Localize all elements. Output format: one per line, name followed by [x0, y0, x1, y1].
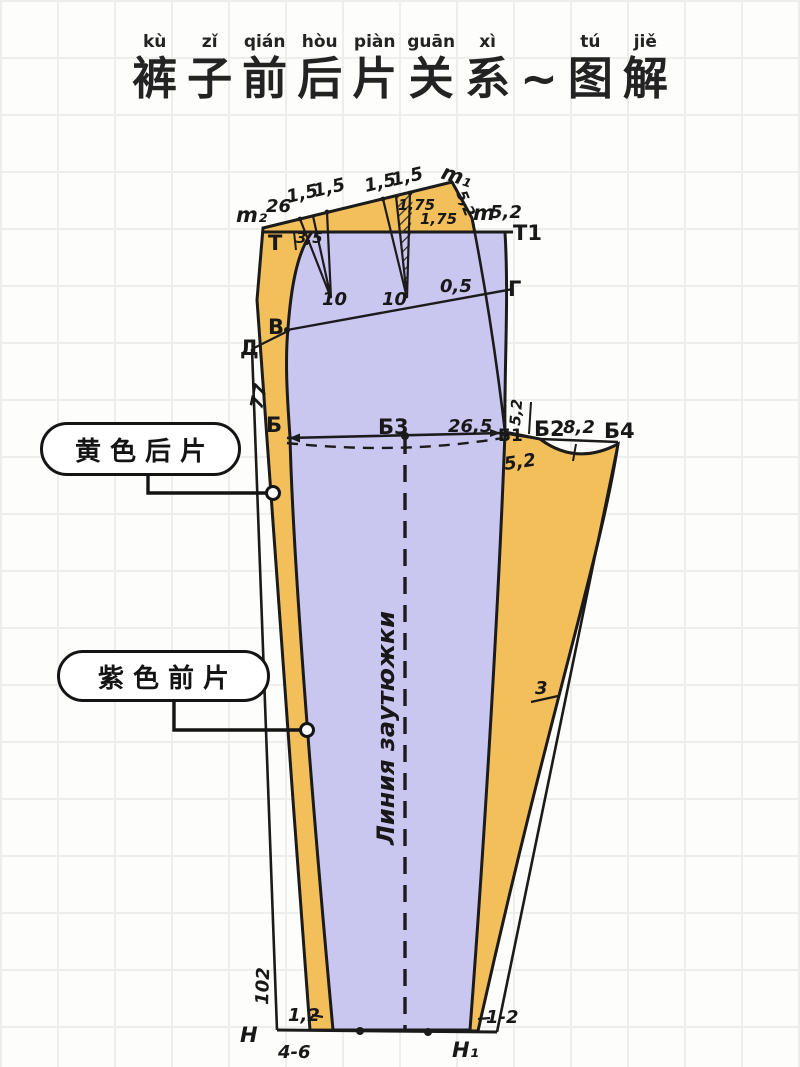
point-V [284, 327, 290, 333]
hem-point [424, 1028, 432, 1036]
label-102: 102 [252, 967, 274, 1005]
label-T: Т [268, 231, 283, 255]
dart-top-point [381, 197, 386, 202]
callout-back-piece: 黄色后片 [40, 422, 241, 476]
label-B4: Б4 [604, 419, 635, 443]
dart-top-point [325, 210, 330, 215]
callout-back-connector [148, 476, 273, 493]
label-1-5-d: 1,5 [389, 163, 425, 191]
label-10-a: 10 [322, 289, 347, 310]
label-35: 3,5 [296, 229, 323, 247]
label-m-52: 5,2 [490, 202, 522, 223]
hem-point [356, 1027, 364, 1035]
label-V: В [268, 315, 284, 339]
callout-front-piece: 紫色前片 [57, 650, 270, 702]
callout-anchor-point [301, 724, 314, 737]
pattern-diagram: m₂ 26 1,5 1,5 1,5 1,5 m₁ 5,2 m 5,2 Т1 Т … [0, 0, 800, 1067]
dart-top-point [298, 217, 303, 222]
label-B2: Б2 [534, 417, 565, 441]
dart-top-point [408, 191, 413, 196]
label-T1: Т1 [513, 221, 542, 245]
label-52-dn: 5,2 [503, 450, 538, 475]
label-265: 26,5 [448, 416, 492, 437]
label-46: 4-6 [277, 1042, 311, 1063]
tick-52-b1 [529, 402, 531, 434]
label-05: 0,5 [440, 276, 472, 297]
label-B1: Б1 [498, 426, 523, 446]
label-crease-line: Линия заутюжки [372, 611, 400, 846]
hem-line [277, 1030, 497, 1032]
label-N1: Н₁ [452, 1038, 479, 1062]
label-D: Д [240, 336, 259, 360]
label-1-5-b: 1,5 [311, 174, 347, 202]
label-N: Н [240, 1023, 258, 1047]
label-10-b: 10 [382, 289, 407, 310]
label-B3: Б3 [378, 415, 409, 439]
label-12: 1,2 [288, 1005, 320, 1026]
label-1-2: 1-2 [486, 1007, 519, 1028]
label-175-b: 1,75 [420, 210, 457, 228]
label-52-up: 5,2 [506, 398, 526, 426]
label-m2: m₂ [236, 203, 268, 227]
callout-anchor-point [267, 487, 280, 500]
label-G: Г [508, 277, 521, 301]
label-82: 8,2 [563, 417, 595, 438]
label-B: Б [266, 413, 282, 437]
label-3: 3 [535, 678, 548, 699]
